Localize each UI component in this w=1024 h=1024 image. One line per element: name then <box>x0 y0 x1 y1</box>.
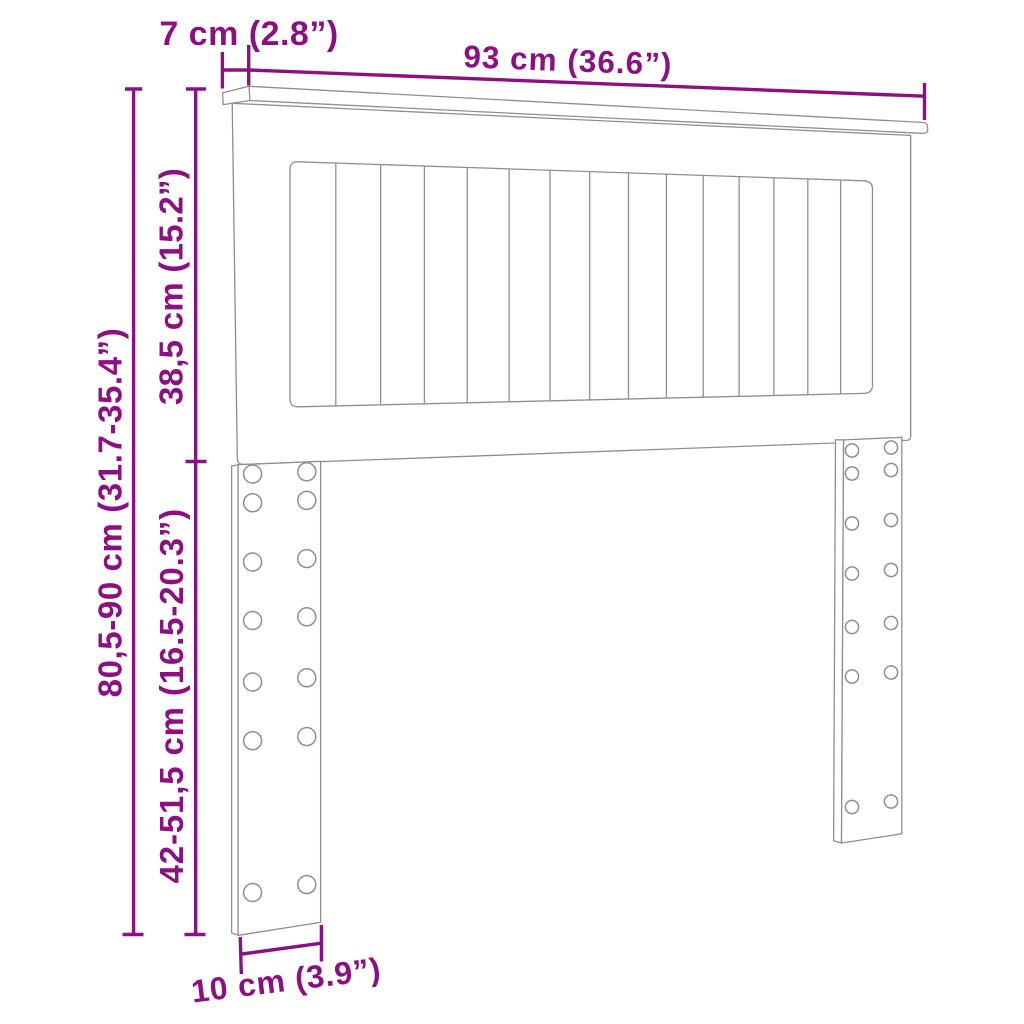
svg-text:42-51,5 cm (16.5-20.3”): 42-51,5 cm (16.5-20.3”) <box>153 508 190 883</box>
svg-text:93 cm (36.6”): 93 cm (36.6”) <box>463 38 673 82</box>
svg-text:80,5-90 cm (31.7-35.4”): 80,5-90 cm (31.7-35.4”) <box>92 328 129 698</box>
svg-text:7 cm (2.8”): 7 cm (2.8”) <box>159 15 338 53</box>
svg-text:10 cm (3.9”): 10 cm (3.9”) <box>189 951 383 1010</box>
svg-text:38,5 cm (15.2”): 38,5 cm (15.2”) <box>152 168 189 405</box>
